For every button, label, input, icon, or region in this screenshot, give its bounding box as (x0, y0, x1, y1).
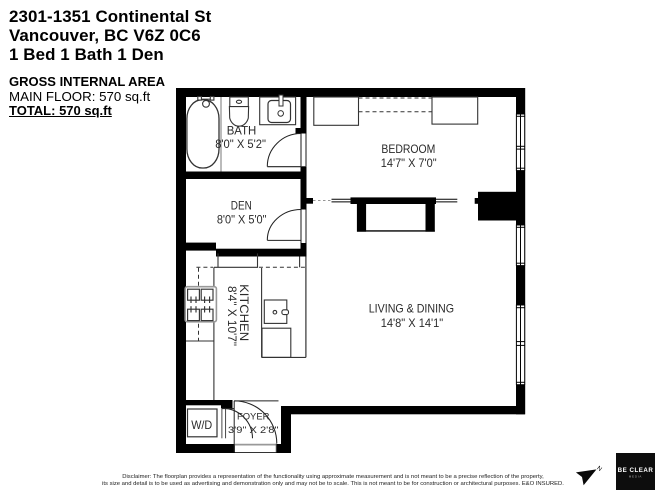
svg-text:N: N (595, 466, 602, 473)
svg-text:3'9" X 2'8": 3'9" X 2'8" (228, 424, 278, 435)
svg-text:14'8" X 14'1": 14'8" X 14'1" (381, 316, 444, 330)
svg-text:BE CLEAR: BE CLEAR (618, 467, 654, 474)
svg-text:W/D: W/D (191, 418, 212, 432)
svg-text:BATH: BATH (227, 124, 257, 138)
svg-text:8'0" X 5'0": 8'0" X 5'0" (217, 213, 267, 227)
svg-text:BEDROOM: BEDROOM (381, 142, 435, 156)
svg-text:14'7" X 7'0": 14'7" X 7'0" (381, 156, 437, 170)
svg-text:DEN: DEN (231, 199, 252, 213)
svg-text:LIVING & DINING: LIVING & DINING (369, 301, 454, 315)
svg-text:8'4" X 10'7": 8'4" X 10'7" (225, 286, 238, 346)
svg-text:FOYER: FOYER (237, 410, 270, 421)
svg-text:KITCHEN: KITCHEN (237, 284, 251, 341)
svg-text:8'0" X 5'2": 8'0" X 5'2" (215, 137, 266, 151)
